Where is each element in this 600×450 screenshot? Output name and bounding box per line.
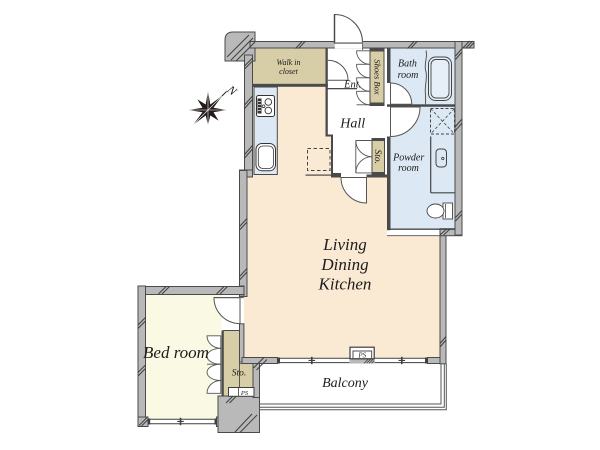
svg-text:room: room [398, 163, 419, 174]
svg-text:Shoes Box: Shoes Box [372, 59, 382, 94]
svg-text:Ent.: Ent. [343, 80, 361, 91]
svg-text:Sto.: Sto. [232, 369, 247, 379]
svg-text:Dining: Dining [320, 255, 368, 274]
svg-text:Balcony: Balcony [322, 376, 369, 391]
svg-text:Walk in: Walk in [277, 58, 301, 67]
svg-text:Kitchen: Kitchen [318, 275, 372, 294]
svg-text:Bed room: Bed room [143, 343, 209, 362]
svg-text:room: room [398, 70, 419, 81]
svg-text:Living: Living [322, 235, 366, 254]
svg-text:PS: PS [240, 390, 249, 397]
svg-text:Powder: Powder [392, 153, 424, 164]
svg-text:Bath: Bath [398, 59, 417, 70]
svg-text:PS: PS [357, 351, 366, 359]
svg-text:Hall: Hall [339, 117, 365, 132]
svg-text:Sto.: Sto. [372, 149, 382, 164]
svg-text:closet: closet [279, 67, 298, 76]
